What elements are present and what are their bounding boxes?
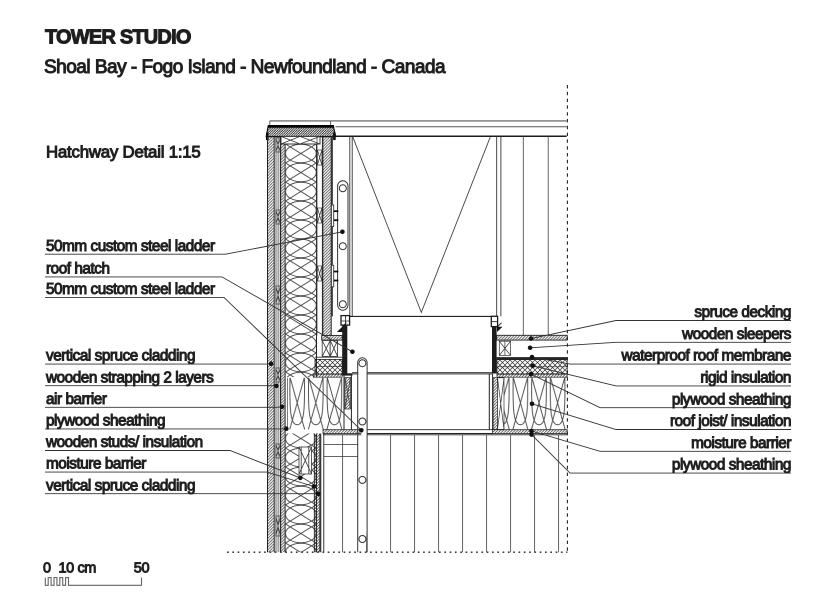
svg-text:roof joist/ insulation: roof joist/ insulation	[670, 413, 791, 430]
svg-text:roof hatch: roof hatch	[46, 261, 110, 278]
svg-text:10 cm: 10 cm	[59, 561, 97, 577]
svg-text:Shoal Bay - Fogo Island - Newf: Shoal Bay - Fogo Island - Newfoundland -…	[44, 57, 446, 78]
svg-text:plywood sheathing: plywood sheathing	[46, 413, 165, 430]
svg-text:plywood sheathing: plywood sheathing	[672, 457, 791, 474]
svg-text:vertical spruce cladding: vertical spruce cladding	[46, 348, 195, 365]
svg-text:50mm custom steel ladder: 50mm custom steel ladder	[46, 238, 215, 255]
svg-text:Hatchway Detail 1:15: Hatchway Detail 1:15	[46, 143, 201, 162]
svg-text:spruce decking: spruce decking	[694, 304, 791, 321]
svg-text:moisture barrier: moisture barrier	[46, 456, 146, 473]
svg-text:wooden sleepers: wooden sleepers	[681, 326, 792, 343]
svg-text:wooden strapping 2 layers: wooden strapping 2 layers	[45, 369, 214, 386]
svg-text:waterproof roof membrane: waterproof roof membrane	[621, 348, 791, 365]
svg-text:0: 0	[43, 561, 51, 577]
svg-text:TOWER STUDIO: TOWER STUDIO	[45, 27, 191, 49]
svg-text:moisture barrier: moisture barrier	[691, 435, 791, 452]
svg-text:air barrier: air barrier	[46, 391, 107, 408]
svg-text:vertical spruce cladding: vertical spruce cladding	[46, 477, 195, 494]
svg-text:rigid insulation: rigid insulation	[700, 370, 791, 387]
svg-text:50mm custom steel ladder: 50mm custom steel ladder	[46, 281, 215, 298]
svg-text:plywood sheathing: plywood sheathing	[672, 391, 791, 408]
svg-text:50: 50	[134, 561, 150, 577]
svg-text:wooden studs/ insulation: wooden studs/ insulation	[45, 434, 203, 451]
